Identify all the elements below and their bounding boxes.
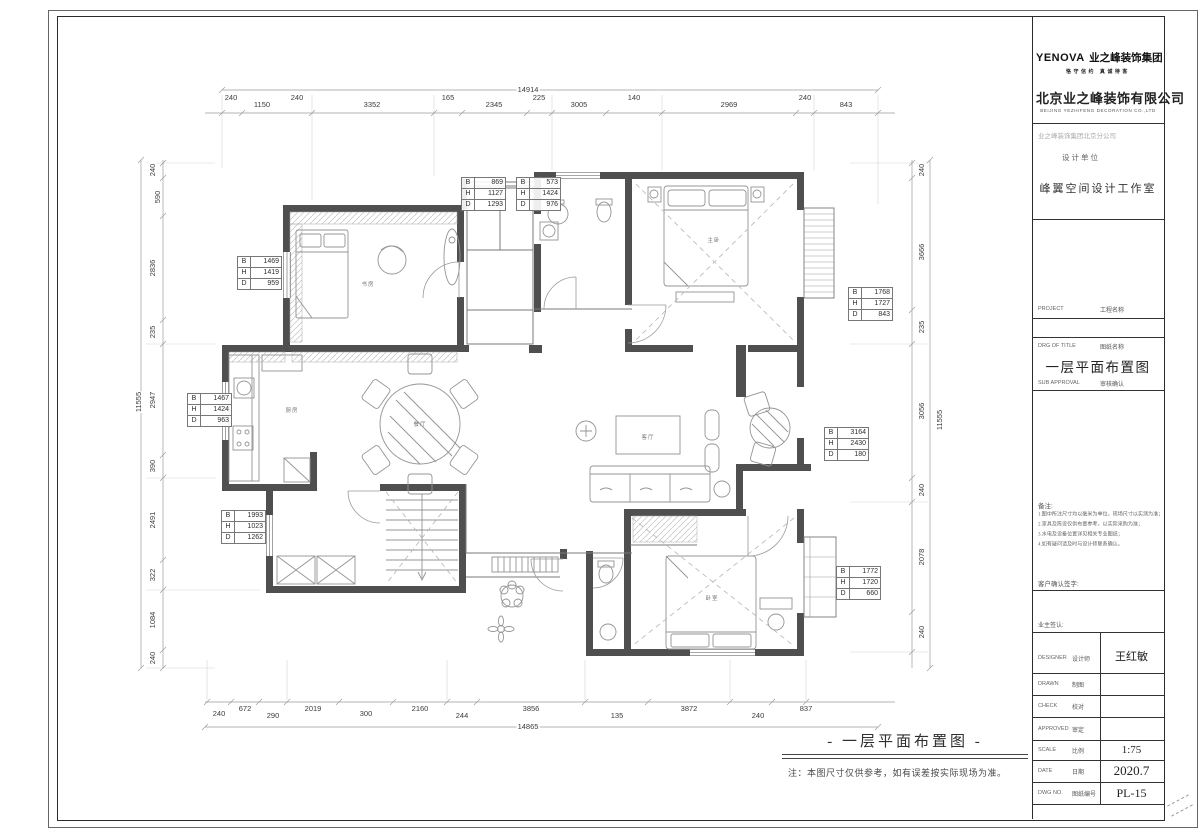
dim-label: 240 <box>918 483 926 498</box>
dim-label: 11555 <box>135 391 143 413</box>
plan-caption-block: - 一层平面布置图 - 注：本图尺寸仅供参考，如有误差按实际现场为准。 <box>782 730 1028 779</box>
window-spec-table: B573 H1424 D976 <box>516 177 561 211</box>
plan-caption: - 一层平面布置图 - <box>782 730 1028 751</box>
dim-label: 2947 <box>149 391 157 410</box>
dim-label: 240 <box>224 94 239 102</box>
row-label-cn: 设计师 <box>1072 654 1090 663</box>
logo-tagline: 恪守信约 真诚待客 <box>1036 68 1160 75</box>
dim-label: 672 <box>238 705 253 713</box>
row-label-en: DWG NO. <box>1038 790 1063 796</box>
dim-label: 843 <box>839 101 854 109</box>
window-spec-table: B1467 H1424 D963 <box>187 393 232 427</box>
dim-label: 240 <box>918 625 926 640</box>
window-spec-table: B1469 H1419 D959 <box>237 256 282 290</box>
company-name: 北京业之峰装饰有限公司 <box>1036 88 1160 107</box>
row-label-en: SCALE <box>1038 747 1056 753</box>
dim-label: 2491 <box>149 511 157 530</box>
dim-label: 235 <box>918 320 926 335</box>
row-label-cn: 图纸编号 <box>1072 789 1096 798</box>
room-label-living: 客厅 <box>641 433 654 441</box>
dim-label: 2345 <box>485 101 504 109</box>
row-label-en: DRAWN <box>1038 681 1059 687</box>
row-label-cn: 制图 <box>1072 680 1084 689</box>
dim-label: 235 <box>149 325 157 340</box>
dim-label: 300 <box>359 710 374 718</box>
note-line: 2.家具及陈设仅供布置参考，以实际采购为准； <box>1038 521 1143 529</box>
logo-brand-text: YENOVA <box>1036 52 1085 64</box>
dim-label: 14865 <box>517 723 540 731</box>
row-label-cn: 比例 <box>1072 746 1084 755</box>
approval-label-cn: 审核确认 <box>1100 379 1124 388</box>
dim-label: 2078 <box>918 548 926 567</box>
approval-label-en: SUB APPROVAL <box>1038 380 1080 386</box>
dim-label: 240 <box>918 163 926 178</box>
dim-label: 240 <box>149 651 157 666</box>
branch-name: 业之峰装饰集团北京分公司 <box>1038 130 1116 140</box>
room-label-master: 主卧 <box>707 236 720 244</box>
dim-label: 290 <box>266 712 281 720</box>
dim-label: 11555 <box>936 409 944 431</box>
row-label-en: DATE <box>1038 768 1052 774</box>
scale-value: 1:75 <box>1100 744 1163 756</box>
caption-rule <box>782 754 1028 759</box>
dim-label: 2160 <box>411 705 430 713</box>
titleblock-border <box>1032 16 1033 819</box>
owner-sign-label: 业主签认: <box>1038 620 1064 629</box>
designer-value: 王红敏 <box>1100 648 1163 664</box>
dim-label: 1150 <box>253 101 271 109</box>
room-label-dining: 餐厅 <box>413 420 426 428</box>
dim-label: 240 <box>149 163 157 178</box>
window-spec-table: B1768 H1727 D843 <box>848 287 893 321</box>
window-spec-table: B1993 H1023 D1262 <box>221 510 266 544</box>
dim-label: 390 <box>149 459 157 474</box>
dim-label: 165 <box>441 94 456 102</box>
plan-note: 注：本图尺寸仅供参考，如有误差按实际现场为准。 <box>782 766 1028 779</box>
dim-label: 2969 <box>720 101 739 109</box>
row-label-cn: 审定 <box>1072 725 1084 734</box>
project-label-cn: 工程名称 <box>1100 305 1124 314</box>
note-line: 1.图中所注尺寸均以毫米为单位，现场尺寸以实测为准； <box>1038 511 1163 519</box>
dim-label: 140 <box>627 94 642 102</box>
dim-label: 837 <box>799 705 814 713</box>
studio-name: 峰翼空间设计工作室 <box>1036 180 1160 196</box>
dim-label: 240 <box>212 710 227 718</box>
dim-label: 3352 <box>363 101 382 109</box>
drawing-number-value: PL-15 <box>1100 786 1163 801</box>
date-value: 2020.7 <box>1100 763 1163 779</box>
room-label-bedroom: 卧室 <box>705 594 718 602</box>
note-line: 3.水电及设备位置详见相关专业图纸； <box>1038 531 1123 539</box>
row-label-en: CHECK <box>1038 703 1057 709</box>
dim-label: 1084 <box>149 611 157 630</box>
dim-label: 3666 <box>918 243 926 262</box>
company-logo: YENOVA 业之峰装饰集团 恪守信约 真诚待客 <box>1036 48 1160 75</box>
dim-label: 2019 <box>304 705 323 713</box>
project-label-en: PROJECT <box>1038 306 1064 312</box>
drawing-title-label-en: DRG OF TITLE <box>1038 343 1076 349</box>
row-label-cn: 校对 <box>1072 702 1084 711</box>
company-name-en: BEIJING YEZHIFENG DECORATION CO.,LTD <box>1036 108 1160 113</box>
logo-cn-text: 业之峰装饰集团 <box>1089 52 1163 64</box>
dim-label: 3856 <box>522 705 541 713</box>
dim-label: 2836 <box>149 259 157 278</box>
note-line: 4.如有疑问请及时与设计师联系确认。 <box>1038 541 1123 549</box>
dim-label: 3056 <box>918 402 926 421</box>
dim-label: 135 <box>610 712 625 720</box>
row-label-en: APPROVED <box>1038 726 1069 732</box>
company-block: 北京业之峰装饰有限公司 BEIJING YEZHIFENG DECORATION… <box>1036 88 1160 113</box>
dim-label: 590 <box>154 190 162 205</box>
room-label-study: 书房 <box>361 280 374 288</box>
client-sign-label: 客户确认签字: <box>1038 578 1079 588</box>
drawing-title-label-cn: 图纸名称 <box>1100 342 1124 351</box>
notes-label: 备注: <box>1038 500 1053 510</box>
dim-label: 3005 <box>570 101 589 109</box>
window-spec-table: B3164 H2430 D180 <box>824 427 869 461</box>
window-spec-table: B1772 H1720 D660 <box>836 566 881 600</box>
window-spec-table: B869 H1127 D1293 <box>461 177 506 211</box>
dim-label: 322 <box>149 568 157 583</box>
drawing-sheet: 14914 240 1150 240 3352 165 2345 225 300… <box>0 0 1200 839</box>
dim-label: 244 <box>455 712 470 720</box>
dim-label: 225 <box>532 94 547 102</box>
dim-label: 240 <box>798 94 813 102</box>
design-unit-label: 设计单位 <box>1062 152 1100 163</box>
floor-plan-drawing <box>0 0 1200 839</box>
room-label-kitchen: 厨房 <box>285 406 298 414</box>
dim-label: 240 <box>751 712 766 720</box>
row-label-cn: 日期 <box>1072 767 1084 776</box>
dim-label: 3872 <box>680 705 699 713</box>
row-label-en: DESIGNER <box>1038 655 1067 661</box>
drawing-title: 一层平面布置图 <box>1036 356 1160 376</box>
dim-label: 240 <box>290 94 305 102</box>
